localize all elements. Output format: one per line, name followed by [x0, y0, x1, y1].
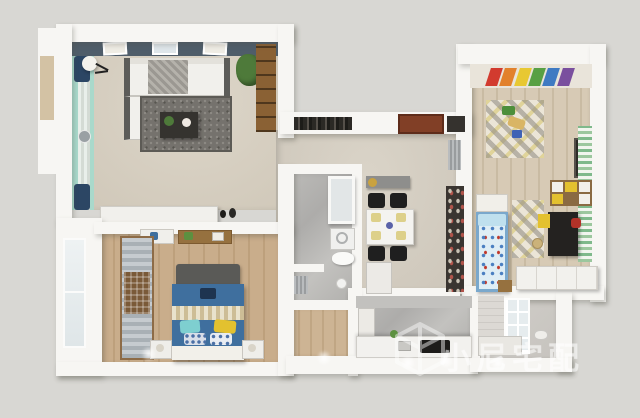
- bed-knit-band: [172, 306, 244, 320]
- kids-curtain-top: [578, 126, 592, 182]
- desk-chair-red: [571, 218, 581, 228]
- place-setting: [371, 231, 381, 240]
- radiator: [448, 140, 461, 170]
- pillow-patterned: [210, 333, 232, 345]
- display-shelf: [446, 186, 464, 292]
- decor-vase: [220, 210, 226, 218]
- exterior-panel: [40, 56, 54, 120]
- navy-curtain-bottom: [74, 184, 90, 210]
- kids-nightstand: [498, 280, 512, 292]
- table-flowers: [182, 118, 191, 127]
- sofa-armrest: [124, 58, 130, 96]
- bathroom-divider-wall: [290, 264, 324, 272]
- entry-door: [398, 114, 444, 134]
- refrigerator: [366, 262, 392, 294]
- table-lamp: [156, 344, 164, 352]
- place-setting: [371, 213, 381, 222]
- sideboard: [100, 206, 218, 223]
- decor-vase: [229, 208, 236, 218]
- washer-door: [336, 232, 348, 244]
- wall-art-frame: [152, 42, 178, 55]
- wall: [56, 362, 292, 376]
- wall: [56, 24, 294, 42]
- kids-rug-bottom: [512, 200, 544, 258]
- wardrobe-lattice-door: [124, 272, 150, 314]
- sofa-throw-blanket: [148, 60, 188, 94]
- paper-roll: [336, 278, 347, 289]
- kids-bed-headboard: [476, 194, 508, 212]
- yellow-storage-cube: [538, 214, 550, 228]
- round-stool: [532, 238, 543, 249]
- toy-book: [512, 130, 522, 138]
- pillow-teal: [180, 319, 201, 333]
- table-lamp: [248, 344, 256, 352]
- kids-rug-top: [486, 100, 544, 158]
- place-setting: [396, 213, 406, 222]
- bed-headboard: [176, 264, 240, 284]
- bed-logo-patch: [200, 288, 216, 299]
- gold-clock: [368, 178, 377, 187]
- light-flare: [141, 346, 157, 362]
- light-flare: [316, 350, 332, 366]
- sofa-armrest: [224, 58, 230, 96]
- table-plant: [164, 116, 174, 126]
- bookshelf: [256, 44, 276, 132]
- bathroom-wall: [282, 164, 362, 174]
- shoe-cabinet: [447, 116, 465, 132]
- table-centerpiece: [386, 222, 393, 229]
- bathtub: [328, 176, 355, 224]
- dining-chair: [390, 193, 407, 208]
- place-setting: [396, 231, 406, 240]
- dining-chair: [390, 246, 407, 261]
- bath-radiator: [294, 276, 308, 294]
- dining-chair: [368, 246, 385, 261]
- kids-pillow: [478, 214, 506, 226]
- cube-shelf: [550, 180, 592, 206]
- toy-tractor: [502, 106, 515, 115]
- wall-art-frame: [203, 41, 228, 55]
- wall-clock: [78, 130, 91, 143]
- dining-chair: [368, 193, 385, 208]
- shelf-frame: [212, 232, 224, 241]
- bedroom-window: [63, 238, 86, 348]
- bathroom-wall: [282, 164, 292, 310]
- wall: [590, 44, 606, 302]
- kids-dresser: [516, 266, 598, 290]
- wall: [56, 24, 72, 224]
- utility-tiled-wall: [478, 296, 504, 336]
- pillow-patterned: [184, 333, 206, 345]
- rainbow-wall-art: [488, 68, 572, 86]
- floor-plan-scene: 小尼宅配: [0, 0, 640, 418]
- wall: [458, 44, 604, 64]
- shelf-plant: [184, 232, 193, 240]
- toilet: [332, 252, 354, 265]
- bathroom-wall: [282, 300, 362, 310]
- kitchen-backsplash: [356, 296, 472, 308]
- window-mullion: [63, 291, 86, 293]
- pillow-yellow: [213, 319, 236, 334]
- entry-mosaic-decor: [294, 117, 352, 130]
- wall-art-frame: [103, 41, 128, 55]
- bed-duvet: [172, 346, 244, 360]
- kids-curtain-bottom: [578, 204, 592, 262]
- watermark-text: 小尼宅配: [440, 333, 584, 378]
